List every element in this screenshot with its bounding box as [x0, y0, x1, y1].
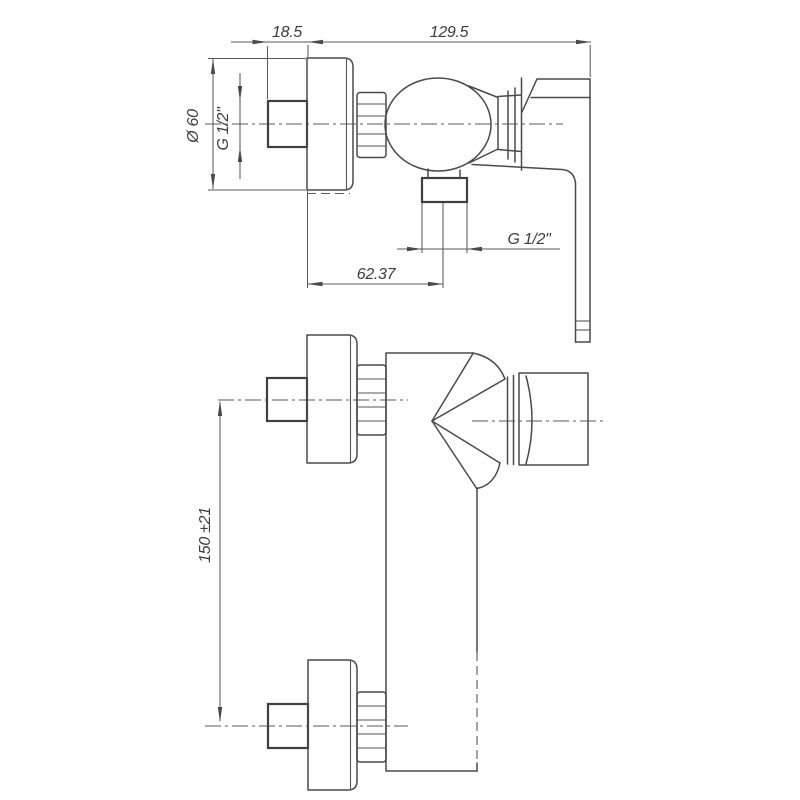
- cone-fan-2: [432, 379, 505, 421]
- lower-flange: [308, 660, 357, 790]
- dim-outlet-thread-label: G 1/2": [507, 231, 552, 248]
- arrowhead: [576, 40, 591, 44]
- mixer-body-front: [386, 353, 477, 771]
- faucet-drawing-svg: 18.5 129.5 Ø 60 G 1/2" G 1/2" 62.37 150 …: [0, 0, 800, 800]
- cone-top-fillet: [473, 353, 505, 379]
- arrowhead: [253, 40, 268, 44]
- cone-bottom-fillet: [477, 463, 500, 489]
- dim-inlet-thread-label: G 1/2": [215, 106, 232, 151]
- dim-flange-diameter-label: Ø 60: [185, 109, 202, 144]
- arrowhead: [238, 86, 242, 101]
- technical-drawing-page: 18.5 129.5 Ø 60 G 1/2" G 1/2" 62.37 150 …: [0, 0, 800, 800]
- dim-inlet-spacing-label: 150 ±21: [197, 507, 214, 563]
- arrowhead: [218, 401, 222, 417]
- arrowhead: [407, 247, 422, 251]
- arrowhead: [211, 59, 215, 74]
- collar-dome: [526, 376, 532, 464]
- arrowhead: [218, 707, 222, 723]
- lower-nut: [357, 692, 386, 762]
- cone-fan-1: [432, 354, 473, 422]
- cap-band-bottom: [498, 150, 521, 152]
- side-view: [205, 58, 590, 342]
- arrowhead: [467, 247, 482, 251]
- upper-flange: [307, 335, 357, 463]
- lever-neck: [522, 79, 537, 112]
- arrowhead: [428, 282, 443, 286]
- arrowhead: [308, 282, 323, 286]
- body-ledge: [472, 165, 576, 184]
- cone-fan-3: [432, 421, 500, 463]
- dim-wall-to-flange-label: 18.5: [272, 24, 302, 41]
- cap-band-top: [498, 95, 521, 97]
- arrowhead: [238, 147, 242, 162]
- cone-fan-4: [432, 421, 477, 489]
- arrowhead: [308, 40, 323, 44]
- outlet-port-side: [422, 178, 467, 202]
- mounting-nut-side: [357, 93, 386, 158]
- front-view: [205, 335, 605, 790]
- arrowhead: [211, 174, 215, 189]
- dim-outlet-offset-label: 62.37: [357, 266, 397, 283]
- dim-body-length-label: 129.5: [430, 24, 469, 41]
